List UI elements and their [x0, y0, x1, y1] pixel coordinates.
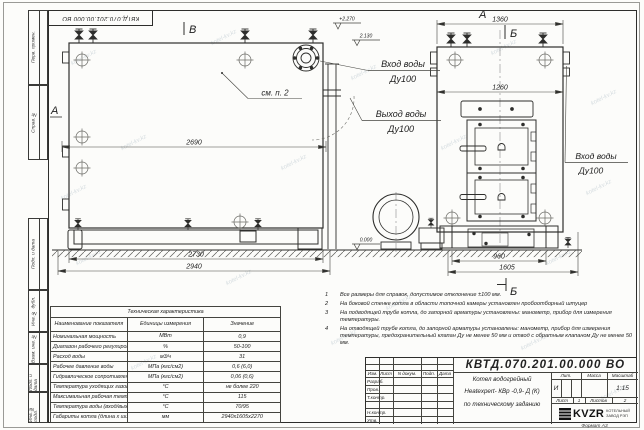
view-label-v: В	[189, 24, 196, 36]
outlet-label: Выход воды Ду100	[350, 98, 441, 134]
valve-icon	[309, 29, 317, 43]
center-mark-icon	[237, 52, 254, 69]
kvzr-logo-icon	[559, 408, 571, 420]
base-skid	[68, 228, 322, 249]
furnace-door-lower	[460, 173, 536, 221]
vent-panel	[461, 101, 533, 117]
tb-row-utv: Утв.	[367, 416, 393, 424]
elevation-zero: 0.000	[360, 238, 373, 244]
tech-table-title: Техническая характеристика	[51, 307, 281, 318]
svg-text:Ду100: Ду100	[387, 124, 414, 134]
tb-col-podp: Подп.	[421, 370, 437, 377]
note-item: 4На отводящей трубе котла, до запорной а…	[325, 326, 635, 348]
lit-header: Лит.	[551, 372, 581, 379]
tb-col-data: Дата	[437, 370, 453, 377]
valve-icon	[75, 29, 83, 43]
format-note: Формат А3	[552, 424, 637, 429]
drawing-sheet: kotel-kv.kz kotel-kv.kz kotel-kv.kz kote…	[0, 0, 644, 430]
center-mark-icon	[537, 210, 554, 227]
note-item: 3На подводящей трубе котла, до запорной …	[325, 310, 635, 325]
doc-number: КВТД.070.201.00.000 ВО	[453, 358, 638, 372]
side-base	[440, 226, 558, 248]
center-mark-icon	[447, 52, 464, 69]
top-stamp-number: КВТД.070.201.00.000 ВО	[62, 15, 139, 21]
valve-icon	[241, 29, 249, 43]
fan-blower	[373, 192, 444, 252]
elevation-inlet: 2.130	[359, 34, 373, 40]
note-item: 2На боковой стенке котла в области топоч…	[325, 301, 635, 308]
center-mark-icon	[74, 129, 91, 146]
valve-icon	[89, 29, 97, 43]
kvzr-logo-text: KVZR	[573, 408, 604, 420]
company-logo: KVZR КОТЕЛЬНЫЙ ЗАВОД РЭП	[551, 403, 638, 424]
center-mark-icon	[74, 52, 91, 69]
svg-text:Ду100: Ду100	[389, 74, 416, 84]
valve-icon	[539, 33, 547, 47]
svg-text:Вход воды: Вход воды	[381, 59, 425, 69]
dim-front-mid: 2730	[187, 252, 204, 259]
tb-row-razrab: Разраб.	[367, 377, 393, 385]
furnace-door-upper	[460, 120, 536, 173]
tb-col-izm: Изм.	[366, 370, 379, 377]
lit-value: И	[551, 379, 561, 397]
view-label-a: А	[478, 9, 486, 21]
tb-row-nkontr: Н.контр.	[367, 408, 393, 416]
tb-row-tkontr: Т.контр.	[367, 393, 393, 401]
section-label-b-top: Б	[510, 28, 517, 40]
dim-side-overall: 1605	[499, 265, 515, 272]
technical-characteristics-table: Техническая характеристика Наименование …	[50, 306, 281, 423]
latch-icon	[498, 144, 505, 151]
door-handle	[460, 146, 486, 151]
notes-list: 1Все размеры для справок, допустимое отк…	[325, 292, 635, 349]
tb-row-prov: Пров.	[367, 385, 393, 393]
tech-row: Температура воды (вход/выход)°С70/95	[51, 402, 281, 412]
center-mark-icon	[537, 52, 554, 69]
scale-header: Масштаб	[607, 372, 638, 379]
tb-col-dokum: N докум.	[393, 370, 421, 377]
tech-row: Габариты котла (длина х ширина х высота)…	[51, 412, 281, 422]
dim-front-overall: 2940	[185, 264, 202, 271]
door-handle	[460, 195, 486, 200]
center-mark-icon	[74, 160, 91, 177]
tech-col-units: Единицы измерения	[127, 318, 204, 332]
inlet-label-front: Вход воды Ду100	[320, 59, 440, 84]
mass-header: Масса	[581, 372, 607, 379]
tech-row: Расход водым3/ч31	[51, 352, 281, 362]
title-block: Изм. Лист N докум. Подп. Дата Разраб. Пр…	[365, 357, 637, 423]
valve-icon	[428, 218, 433, 228]
latch-icon	[498, 194, 505, 201]
svg-text:Выход воды: Выход воды	[376, 109, 427, 119]
dim-side-base: 960	[493, 254, 505, 261]
tech-row: Рабочее давление водыМПа (кгс/см2)0,6 (6…	[51, 362, 281, 372]
outlet-pipe	[312, 64, 354, 249]
svg-text:Вход воды: Вход воды	[575, 151, 617, 161]
product-name: Котел водогрейный Heatexpert- КВр -0,9- …	[453, 372, 551, 424]
tech-row: Температура уходящих газов°Сне более 220	[51, 382, 281, 392]
see-note-callout: см. п. 2	[221, 72, 302, 99]
scale-value: 1:15	[607, 379, 638, 397]
top-stamp: КВТД.070.201.00.000 ВО	[48, 10, 153, 26]
tech-row: Гидравлическое сопротивление котлаМПа (к…	[51, 372, 281, 382]
tech-row: Номинальная мощностьМВт0,9	[51, 332, 281, 342]
top-flange	[293, 45, 319, 71]
tech-col-value: Значение	[204, 318, 281, 332]
drain-valve-icon	[565, 238, 571, 249]
tech-row: Диапазон рабочего регулирования%50-100	[51, 342, 281, 352]
valve-icon	[463, 33, 471, 47]
inlet-label-side: Вход воды Ду100	[565, 66, 628, 176]
dim-side-top: 1360	[492, 17, 508, 24]
elevation-top: +2.270	[339, 17, 355, 23]
dim-front-top: 2690	[185, 140, 202, 147]
valve-icon	[447, 33, 455, 47]
tech-row: Максимальная рабочая температура воды°С1…	[51, 392, 281, 402]
dim-side-inner: 1260	[492, 85, 508, 92]
tb-col-list: Лист	[379, 370, 393, 377]
center-mark-icon	[444, 210, 461, 227]
tech-col-name: Наименование показателя	[51, 318, 128, 332]
svg-text:Ду100: Ду100	[578, 166, 604, 176]
see-note-text: см. п. 2	[261, 89, 289, 98]
note-item: 1Все размеры для справок, допустимое отк…	[325, 292, 635, 299]
company-name: КОТЕЛЬНЫЙ ЗАВОД РЭП	[606, 409, 630, 418]
view-arrow-a: А	[50, 105, 58, 117]
